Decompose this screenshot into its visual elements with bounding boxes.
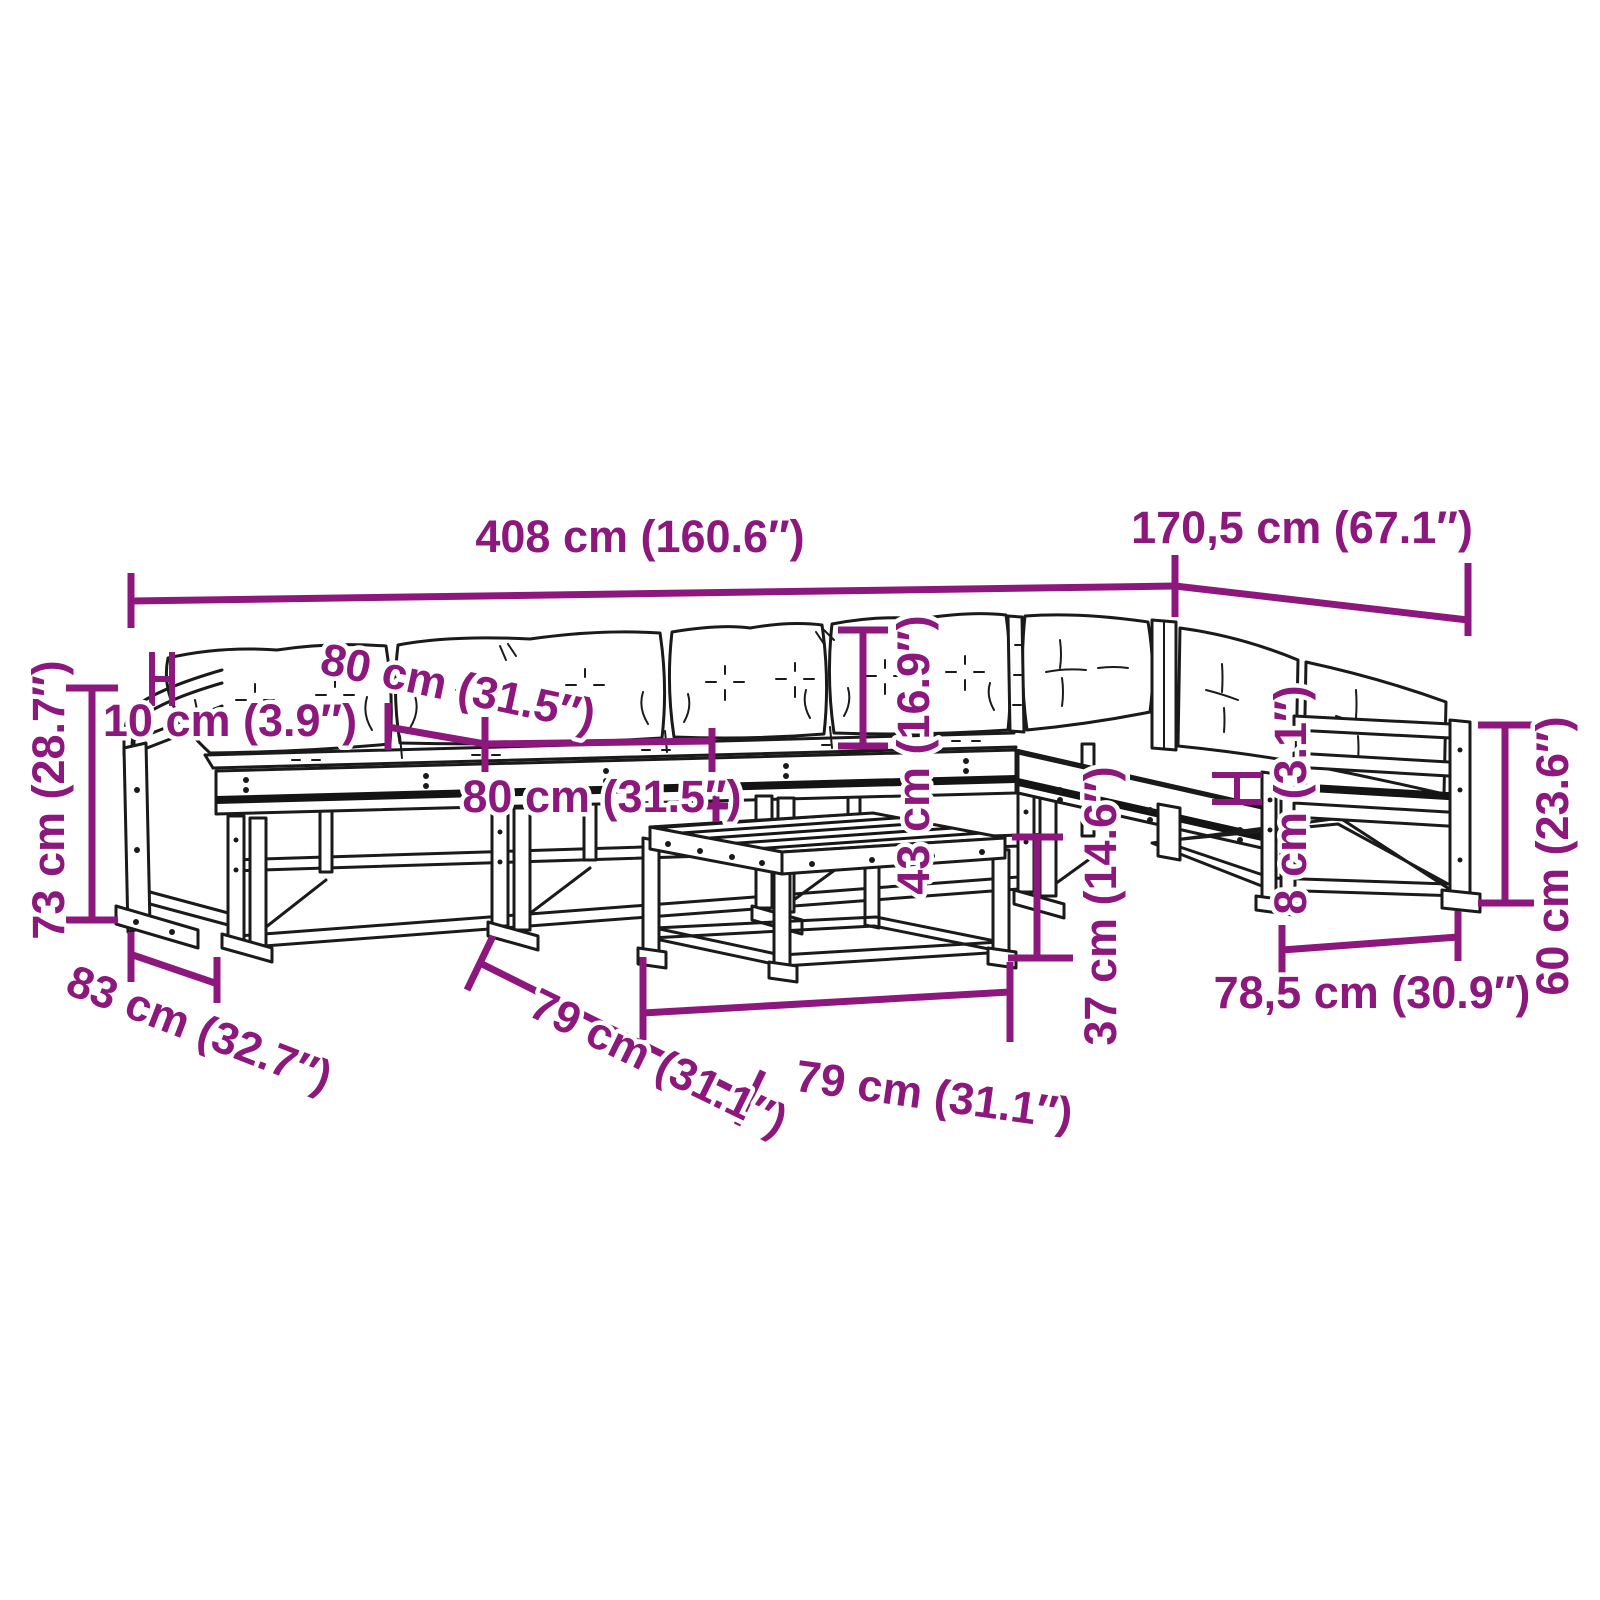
diagram-canvas: 408 cm (160.6″) 170,5 cm (67.1″) 73 cm (… xyxy=(0,0,1600,1600)
dim-seat-depth xyxy=(1282,911,1458,975)
label-seat-depth: 78,5 cm (30.9″) xyxy=(1214,967,1531,1018)
label-total-height: 73 cm (28.7″) xyxy=(23,660,74,939)
label-table-height: 37 cm (14.6″) xyxy=(1075,766,1126,1045)
coffee-table xyxy=(638,813,1016,982)
label-armrest-top-width: 10 cm (3.9″) xyxy=(103,695,357,746)
label-table-front: 79 cm (31.1″) xyxy=(792,1050,1076,1139)
label-backrest-height: 43 cm (16.9″) xyxy=(888,615,939,894)
label-total-width: 408 cm (160.6″) xyxy=(475,511,804,562)
label-armrest-thickness: 8 cm (3.1″) xyxy=(1265,685,1316,914)
dimension-diagram: 408 cm (160.6″) 170,5 cm (67.1″) 73 cm (… xyxy=(0,0,1600,1600)
dim-table-front xyxy=(643,957,1010,1042)
label-total-depth: 170,5 cm (67.1″) xyxy=(1131,502,1473,553)
dim-total-depth xyxy=(1175,563,1468,636)
label-seat-width: 80 cm (31.5″) xyxy=(462,771,741,822)
dim-armrest-height xyxy=(1478,725,1534,903)
label-armrest-height: 60 cm (23.6″) xyxy=(1527,716,1578,995)
